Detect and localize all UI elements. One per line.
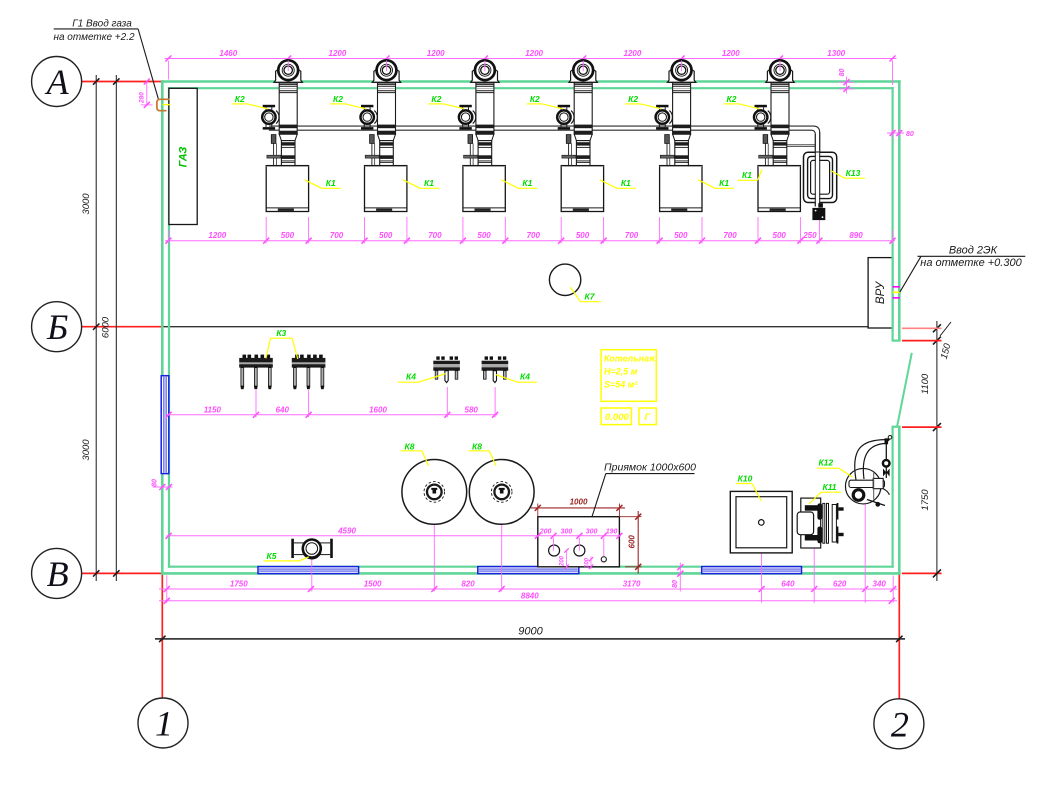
svg-text:К4: К4 [406,371,416,381]
svg-text:Г1 Ввод газа: Г1 Ввод газа [72,18,132,29]
svg-text:1200: 1200 [208,231,226,240]
svg-text:К2: К2 [530,94,540,104]
svg-text:1200: 1200 [722,49,740,58]
svg-text:3000: 3000 [81,193,92,215]
svg-text:Н=2,5 м: Н=2,5 м [604,367,638,377]
svg-text:К8: К8 [472,441,482,451]
svg-text:500: 500 [281,231,295,240]
svg-text:К1: К1 [742,170,752,180]
svg-text:640: 640 [276,405,290,414]
svg-text:В: В [47,554,69,594]
svg-text:К13: К13 [846,168,861,178]
svg-text:К7: К7 [585,292,596,302]
svg-text:К5: К5 [267,551,277,561]
svg-text:250: 250 [802,231,817,240]
svg-text:3000: 3000 [81,439,92,461]
svg-text:0.000: 0.000 [605,412,629,423]
svg-text:200: 200 [560,555,566,567]
svg-text:А: А [45,62,70,102]
svg-text:К2: К2 [628,94,638,104]
svg-text:200: 200 [539,528,552,535]
svg-text:К2: К2 [727,94,737,104]
svg-text:К11: К11 [822,482,836,492]
svg-text:1750: 1750 [230,580,248,589]
svg-text:700: 700 [428,231,442,240]
svg-text:700: 700 [330,231,344,240]
svg-text:1500: 1500 [364,580,382,589]
svg-text:8840: 8840 [521,591,539,600]
svg-text:К3: К3 [276,328,286,338]
svg-text:1150: 1150 [204,405,222,414]
svg-text:на отметке +0.300: на отметке +0.300 [920,257,1022,269]
svg-text:500: 500 [773,231,787,240]
svg-text:К2: К2 [235,94,245,104]
svg-text:700: 700 [723,231,737,240]
svg-text:500: 500 [379,231,393,240]
svg-text:280: 280 [139,92,146,104]
svg-text:1000: 1000 [570,498,588,507]
svg-text:Котельная:: Котельная: [604,354,657,364]
svg-text:9000: 9000 [518,626,543,638]
svg-text:К4: К4 [520,371,530,381]
svg-text:1100: 1100 [920,373,931,394]
svg-text:500: 500 [674,231,688,240]
svg-text:Б: Б [46,307,68,347]
svg-text:К1: К1 [719,178,729,188]
svg-text:1200: 1200 [624,49,642,58]
svg-text:1: 1 [155,704,173,744]
svg-text:80: 80 [672,580,679,588]
svg-text:К1: К1 [621,178,631,188]
svg-text:К1: К1 [326,178,336,188]
svg-text:700: 700 [527,231,541,240]
svg-text:340: 340 [873,580,887,589]
svg-text:640: 640 [781,580,795,589]
svg-text:100: 100 [585,557,591,568]
svg-text:600: 600 [628,535,637,549]
svg-text:К8: К8 [405,441,415,451]
svg-text:80: 80 [906,131,914,138]
svg-text:S=54 м²: S=54 м² [604,380,638,390]
svg-text:4590: 4590 [337,526,356,535]
svg-text:1600: 1600 [369,405,387,414]
svg-text:Приямок 1000х600: Приямок 1000х600 [604,462,696,474]
svg-text:820: 820 [461,580,475,589]
svg-text:К1: К1 [522,178,532,188]
svg-text:300: 300 [586,528,598,535]
svg-text:1200: 1200 [525,49,543,58]
svg-text:1460: 1460 [219,49,237,58]
svg-text:К2: К2 [431,94,441,104]
svg-text:К10: К10 [738,473,753,483]
svg-text:на отметке +2.2: на отметке +2.2 [53,32,134,43]
svg-text:1200: 1200 [427,49,445,58]
svg-text:890: 890 [849,231,863,240]
svg-text:2: 2 [891,704,909,744]
svg-text:500: 500 [576,231,590,240]
svg-text:6000: 6000 [101,316,112,338]
svg-text:3170: 3170 [623,580,641,589]
svg-text:190: 190 [606,528,618,535]
svg-text:300: 300 [561,528,573,535]
svg-text:580: 580 [465,405,479,414]
svg-text:ВРУ: ВРУ [875,280,887,304]
svg-text:620: 620 [833,580,847,589]
svg-text:1200: 1200 [329,49,347,58]
svg-text:500: 500 [477,231,491,240]
svg-text:К12: К12 [818,457,833,467]
svg-text:Ввод 2ЭК: Ввод 2ЭК [949,245,998,257]
svg-text:ГАЗ: ГАЗ [178,147,190,168]
svg-text:80: 80 [152,479,159,487]
svg-text:700: 700 [625,231,639,240]
svg-text:1750: 1750 [920,489,931,511]
svg-text:80: 80 [839,69,846,77]
svg-text:1300: 1300 [827,49,845,58]
svg-text:К1: К1 [424,178,434,188]
svg-text:К2: К2 [333,94,343,104]
